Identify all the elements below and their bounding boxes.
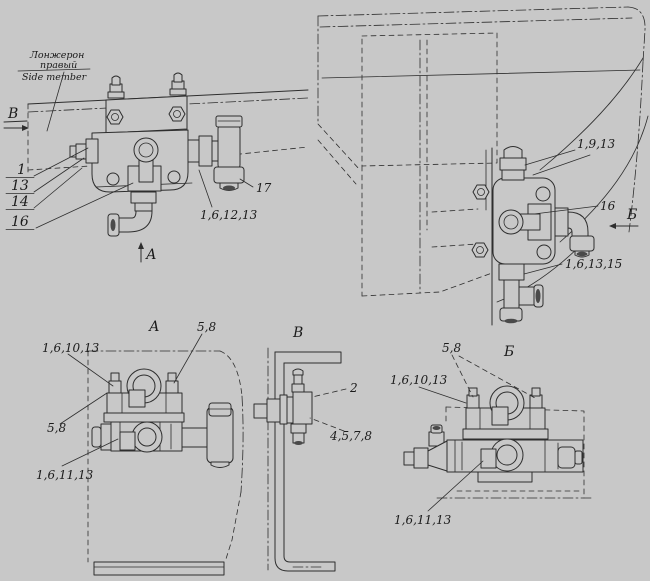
detail-view-b: Б [390,341,592,527]
callout-14: 14 [11,194,29,210]
view-v-callouts: 2 4,5,7,8 [310,381,372,443]
annotation-en: Side member [22,72,88,83]
detail-view-a: А [36,319,243,575]
detail-view-v: В 2 4,5,7,8 [254,325,372,571]
callout-161013-a: 1,6,10,13 [42,341,100,355]
parts-diagram-canvas: Лонжерон правый Side member В А 1 13 14 [0,0,650,581]
callout-16: 16 [11,214,29,230]
cab-top-fitting [500,147,526,181]
rail-bolt [170,73,186,95]
callout-2: 2 [349,381,358,395]
callout-16-12-13: 1,6,12,13 [200,208,258,222]
callout-1-6-13-15: 1,6,13,15 [565,257,622,271]
callout-58-b: 5,8 [442,341,461,355]
view-b-title: Б [503,344,514,360]
callout-1-9-13: 1,9,13 [577,137,616,151]
bottom-elbow-fitting [108,192,156,236]
callout-17: 17 [256,181,272,195]
view-b-upper-valve [463,386,548,439]
rail-bolt [108,76,124,98]
arrow-v-label: В [7,106,18,122]
arrow-b-label: Б [626,207,637,223]
callout-58-left: 5,8 [47,421,66,435]
callout-161113-a: 1,6,11,13 [36,468,94,482]
callout-16-cab: 16 [600,199,616,213]
view-direction-arrow-a: А [138,242,157,263]
brake-valve-body [92,130,192,192]
view-a-upper-valve [104,369,184,422]
arrow-a-label: А [145,247,157,263]
main-assembly-view: Лонжерон правый Side member В А 1 13 14 [4,50,308,263]
callout-13: 13 [11,178,29,194]
bumper-bar [94,562,224,575]
cab-valve-assembly [472,147,594,326]
side-member-annotation: Лонжерон правый Side member [18,50,90,131]
view-v-title: В [292,325,303,341]
left-fitting [70,139,98,163]
callout-161113-b: 1,6,11,13 [394,513,452,527]
view-v-bracket [268,348,341,571]
cab-phantom-view: 1,9,13 16 Б 1,6,13,15 [318,7,648,325]
callout-4578: 4,5,7,8 [329,429,372,443]
callout-1: 1 [17,162,26,178]
callout-58-top: 5,8 [197,320,216,334]
callout-161013-b: 1,6,10,13 [390,373,448,387]
view-direction-arrow-v: В [4,106,29,131]
view-v-valve [254,369,312,445]
view-a-title: А [148,319,160,335]
callout-17-group: 17 [240,179,272,195]
cab-bottom-fitting [499,264,543,323]
bracket-plate [106,96,187,133]
tee-fitting [188,116,244,191]
